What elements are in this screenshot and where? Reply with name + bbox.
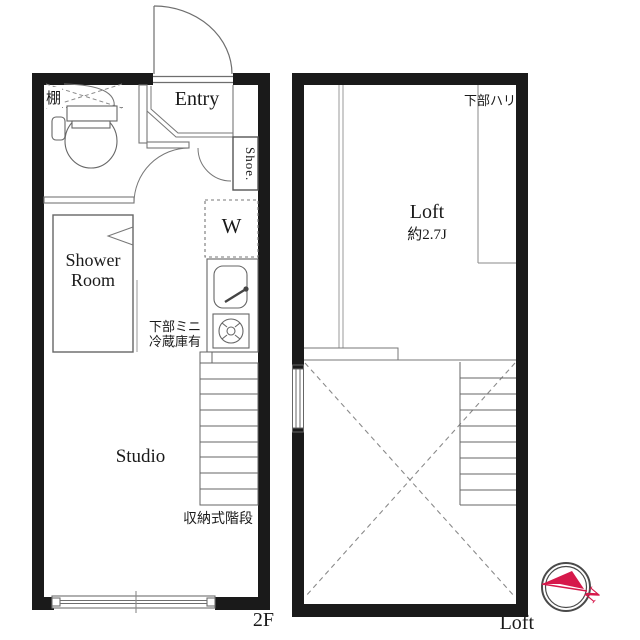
shoe-closet-label: Shoe. — [233, 139, 258, 189]
floor-plan-drawing — [0, 0, 640, 640]
fridge-note-line1: 下部ミニ — [147, 319, 203, 334]
beam-note-label: 下部ハリ — [454, 90, 516, 109]
washer-label: W — [205, 214, 258, 239]
sink-icon — [214, 266, 247, 308]
retractable-stairs-label: 収納式階段 — [183, 508, 253, 528]
stairs-2f — [200, 352, 258, 505]
stairs-loft — [460, 362, 516, 505]
fridge-note: 下部ミニ 冷蔵庫有 — [147, 319, 203, 349]
loft-plan-walls — [292, 73, 528, 617]
kitchen-counter — [207, 259, 258, 352]
open-void-cross — [305, 363, 515, 597]
window-icon-loft — [293, 365, 304, 432]
shelf-label: 棚 — [45, 87, 62, 108]
window-icon-2f — [52, 591, 215, 613]
floor-label-loft: Loft — [486, 612, 534, 635]
floor-plan-page: Entry Shoe. W Shower Room Studio 棚 下部ミニ … — [0, 0, 640, 640]
entrance-door-icon — [153, 6, 233, 83]
studio-room-label: Studio — [103, 446, 178, 468]
shower-room-label: Shower Room — [53, 250, 133, 290]
door-arcs — [134, 148, 231, 203]
loft-room-label: Loft — [396, 201, 458, 224]
entry-room-label: Entry — [158, 88, 236, 111]
toilet-icon — [52, 106, 117, 168]
floor-label-2f: 2F — [228, 609, 274, 632]
fridge-note-line2: 冷蔵庫有 — [147, 334, 203, 349]
compass-icon — [542, 563, 590, 611]
loft-size-label: 約2.7J — [392, 223, 462, 244]
